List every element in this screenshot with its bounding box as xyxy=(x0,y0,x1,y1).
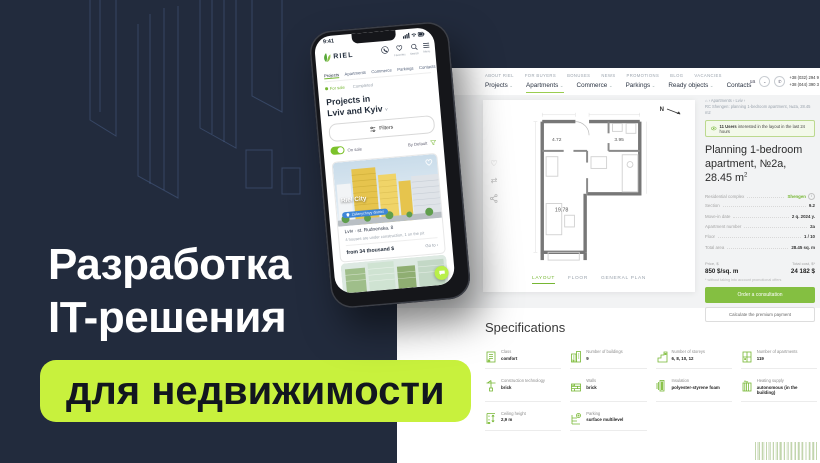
desktop-utility-nav: ABOUT RIEL FOR BUYERS BONUSES NEWS PROMO… xyxy=(485,73,722,78)
green-dot-icon xyxy=(325,87,328,90)
callback-button[interactable] xyxy=(381,46,390,59)
hero-title-line2: IT-решения xyxy=(48,293,286,343)
app-nav-commerce[interactable]: Commerce xyxy=(371,67,392,74)
app-nav-parkings[interactable]: Parkings xyxy=(397,66,414,72)
project-image: Riel City Zaliznychnyy district xyxy=(333,154,442,227)
building-outlines-decor xyxy=(30,0,320,260)
buildings-count-icon xyxy=(570,350,582,363)
projects-title: Projects in Lviv and Kyiv ˅ xyxy=(326,92,388,120)
project-price: from 34 thousand $ xyxy=(346,245,394,255)
search-icon xyxy=(410,43,418,51)
share-icon[interactable] xyxy=(490,194,498,203)
plan-view-tabs: LAYOUT FLOOR GENERAL PLAN xyxy=(483,276,695,284)
spec-item-number-of-buildings: Number of buildings9 xyxy=(570,349,646,369)
hero-title-line1: Разработка xyxy=(48,240,291,290)
apartments-count-icon xyxy=(741,350,753,363)
walls-icon xyxy=(570,379,582,392)
heart-icon xyxy=(395,44,403,51)
page-title: Planning 1-bedroom apartment, №2a, 28.45… xyxy=(705,144,815,185)
compare-icon[interactable]: ⇄ xyxy=(491,177,498,185)
spec-item-parking: Parkingsurface multilevel xyxy=(570,411,646,431)
nav-item-contacts[interactable]: Contacts xyxy=(727,82,752,92)
desktop-main-nav: Projects Apartments Commerce Parkings Re… xyxy=(485,82,751,93)
specifications-title: Specifications xyxy=(485,320,565,335)
detail-row: Apartment number 2a xyxy=(705,224,815,234)
utility-link[interactable]: BLOG xyxy=(670,73,683,78)
map-pin-icon xyxy=(346,212,350,217)
card-favorite-heart-icon[interactable] xyxy=(425,158,434,166)
tab-layout[interactable]: LAYOUT xyxy=(532,276,555,284)
room-area-bathroom: 3.95 xyxy=(614,137,624,143)
price-block: Price, $ 850 $/sq. m Total cost, $* 24 1… xyxy=(705,261,815,275)
status-icons xyxy=(402,30,425,39)
chat-icon xyxy=(438,270,445,277)
info-icon[interactable] xyxy=(808,193,815,200)
floor-plan-drawing: 4.72 3.95 19.78 xyxy=(525,106,657,269)
eye-icon xyxy=(711,126,717,131)
district-badge: Zaliznychnyy district xyxy=(342,208,388,218)
detail-row: Floor 1 / 10 xyxy=(705,234,815,244)
compass-needle-icon xyxy=(665,107,685,117)
sliders-icon xyxy=(370,126,377,133)
app-nav: Projects Apartments Commerce Parkings Co… xyxy=(324,64,431,82)
views-badge: 11 Users interested in the layout in the… xyxy=(705,120,815,137)
project-card[interactable]: Riel City Zaliznychnyy district Lviv · s… xyxy=(332,153,446,262)
app-nav-contacts[interactable]: Contacts xyxy=(419,64,436,70)
detail-row: Total area 28.45 sq. m xyxy=(705,245,815,255)
storeys-icon xyxy=(656,350,668,363)
phone-numbers: +38 (032) 294 9 +38 (044) 390 3 xyxy=(789,75,819,88)
favorites-button[interactable]: Favorites xyxy=(393,44,406,57)
hamburger-menu-icon xyxy=(422,42,429,49)
detail-row: Residential complex Shengen xyxy=(705,193,815,203)
compass: N xyxy=(660,107,685,117)
phone-icon[interactable]: ✆ xyxy=(774,76,785,87)
spec-item-class: Classcomfort xyxy=(485,349,561,369)
total-cost-value: 24 182 $ xyxy=(791,268,815,275)
spec-item-ceiling-height: Ceiling height2,9 m xyxy=(485,411,561,431)
promo-banner: ABOUT RIEL FOR BUYERS BONUSES NEWS PROMO… xyxy=(0,0,820,463)
toggle-label: On sale xyxy=(347,146,362,152)
tab-floor[interactable]: FLOOR xyxy=(568,276,588,284)
phone-number[interactable]: +38 (032) 294 9 xyxy=(789,75,819,82)
spec-item-insulation: Insulationpolyester-styrene foam xyxy=(656,378,732,402)
sort-funnel-icon xyxy=(430,139,436,145)
app-header: RIEL Favorites Search xyxy=(322,42,431,63)
menu-button[interactable]: Menu xyxy=(422,42,430,55)
nav-item-commerce[interactable]: Commerce xyxy=(577,82,613,92)
total-cost-label: Total cost, $* xyxy=(791,261,815,266)
breadcrumb-current: RC Shengen: planning 1-bedroom apartment… xyxy=(705,104,815,116)
price-label: Price, $ xyxy=(705,261,738,266)
utility-link[interactable]: ABOUT RIEL xyxy=(485,73,514,78)
phone-number[interactable]: +38 (044) 390 3 xyxy=(789,82,819,89)
utility-link[interactable]: PROMOTIONS xyxy=(627,73,660,78)
hero-badge: для недвижимости xyxy=(40,360,471,422)
nav-item-apartments[interactable]: Apartments xyxy=(526,82,563,93)
utility-link[interactable]: VACANCIES xyxy=(694,73,722,78)
tab-general-plan[interactable]: GENERAL PLAN xyxy=(601,276,646,284)
order-consultation-button[interactable]: Order a consultation xyxy=(705,287,815,303)
ceiling-height-icon xyxy=(485,412,497,425)
calculate-payment-button[interactable]: Calculate the premium payment xyxy=(705,307,815,322)
tab-completed[interactable]: Completed xyxy=(353,82,374,89)
on-sale-toggle[interactable] xyxy=(330,146,345,155)
utility-link[interactable]: NEWS xyxy=(601,73,615,78)
phone-circle-icon xyxy=(381,46,390,55)
compass-n-label: N xyxy=(660,107,664,113)
price-footnote: * without taking into account promotiona… xyxy=(705,278,815,282)
language-selector[interactable]: ua xyxy=(750,79,756,85)
favorite-heart-icon[interactable]: ♡ xyxy=(490,160,497,168)
room-area-hall: 4.72 xyxy=(552,137,562,143)
spec-item-number-of-apartments: Number of apartments119 xyxy=(741,349,817,369)
utility-link[interactable]: FOR BUYERS xyxy=(525,73,556,78)
search-button[interactable]: Search xyxy=(409,43,419,56)
app-nav-apartments[interactable]: Apartments xyxy=(344,70,366,77)
apartment-details-panel: ⌂ › Apartments › Lviv › RC Shengen: plan… xyxy=(705,98,815,322)
nav-item-projects[interactable]: Projects xyxy=(485,82,513,92)
spec-item-walls: Wallsbrick xyxy=(570,378,646,402)
insulation-icon xyxy=(656,379,668,392)
spec-item-construction-technology: Construction technologybrick xyxy=(485,378,561,402)
sale-status-tabs: For sale Completed xyxy=(325,82,373,91)
detail-row: Move-in date 2 q. 2024 y. xyxy=(705,214,815,224)
barcode-decor xyxy=(755,442,817,460)
specifications-grid: Classcomfort Number of buildings9 Number… xyxy=(485,349,817,431)
heating-supply-icon xyxy=(741,379,753,392)
app-nav-projects[interactable]: Projects xyxy=(324,72,340,79)
detail-row: Section 9.2 xyxy=(705,203,815,213)
class-icon xyxy=(485,350,497,363)
app-header-icons: Favorites Search Menu xyxy=(381,42,431,58)
parking-icon xyxy=(570,412,582,425)
status-time: 9:41 xyxy=(323,38,334,45)
tab-for-sale[interactable]: For sale xyxy=(325,85,345,92)
nav-item-parkings[interactable]: Parkings xyxy=(626,82,656,92)
utility-link[interactable]: BONUSES xyxy=(567,73,590,78)
complex-link[interactable]: Shengen xyxy=(787,193,815,200)
details-rows: Residential complex Shengen Section 9.2 … xyxy=(705,193,815,255)
plan-side-actions: ♡ ⇄ xyxy=(490,160,498,203)
filters-button[interactable]: Filters xyxy=(328,115,435,142)
nav-item-ready-objects[interactable]: Ready objects xyxy=(668,82,713,92)
riel-leaf-icon xyxy=(322,51,332,63)
go-to-link[interactable]: Go to › xyxy=(425,242,438,248)
chevron-down-icon[interactable]: ⌄ xyxy=(759,76,770,87)
spec-item-heating-supply: Heating supplyautonomous (in the buildin… xyxy=(741,378,817,402)
construction-technology-icon xyxy=(485,379,497,392)
price-value: 850 $/sq. m xyxy=(705,268,738,275)
riel-logo[interactable]: RIEL xyxy=(322,49,354,63)
floor-plan-card: ♡ ⇄ N xyxy=(483,100,695,292)
desktop-header-right: ua ⌄ ✆ +38 (032) 294 9 +38 (044) 390 3 xyxy=(750,75,819,88)
chevron-down-icon[interactable]: ˅ xyxy=(385,107,388,113)
phone-mockup: 9:41 xyxy=(308,20,472,309)
room-area-living: 19.78 xyxy=(555,207,568,213)
sort-control[interactable]: By Default xyxy=(408,139,437,146)
spec-item-number-of-storeys: Number of storeys6, 8, 10, 12 xyxy=(656,349,732,369)
phone-screen: 9:41 xyxy=(314,27,456,294)
